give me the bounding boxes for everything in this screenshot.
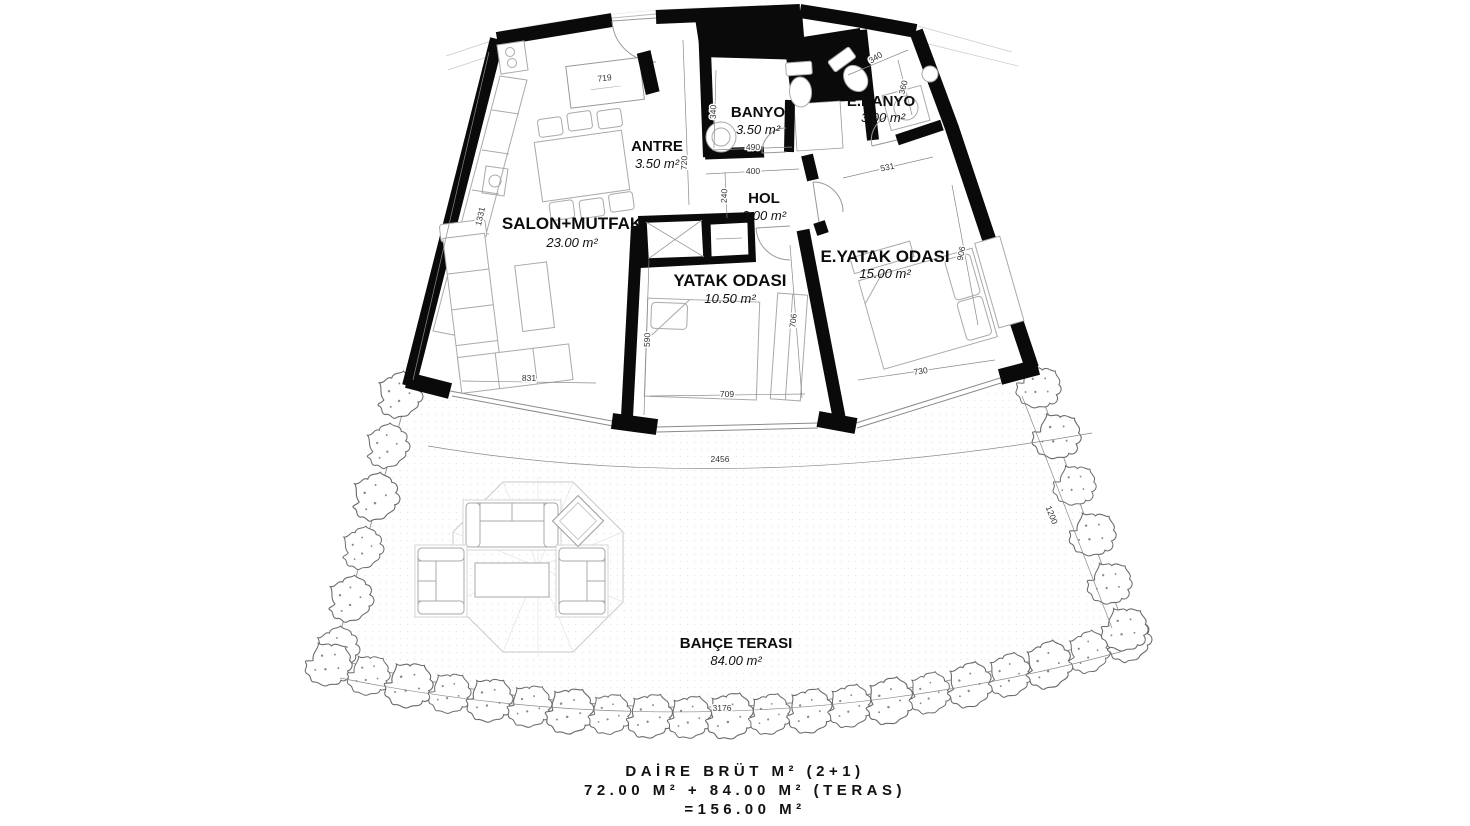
room-area-banyo: 3.50 m²	[736, 122, 781, 137]
room-area-ebanyo: 3.00 m²	[861, 110, 906, 125]
dim-eyatak-window: 730	[913, 365, 929, 377]
coffee-table	[515, 262, 555, 331]
bed-yatak	[644, 298, 759, 400]
summary-line1: DAİRE BRÜT M² (2+1)	[625, 763, 864, 780]
dim-cabinet: 719	[597, 72, 613, 84]
dim-terrace-bottom: 3176	[713, 703, 732, 713]
room-area-antre: 3.50 m²	[635, 156, 680, 171]
room-area-hol: 3.00 m²	[742, 208, 787, 223]
wardrobe-yatak	[770, 293, 807, 401]
sink-ebanyo	[922, 66, 938, 82]
dim-eyatak-top: 531	[879, 161, 895, 174]
dim-terrace-top: 2456	[711, 454, 730, 464]
dim-hol-depth: 240	[719, 188, 729, 203]
dining-table	[531, 106, 635, 223]
floorplan-svg: 719	[0, 0, 1470, 826]
dim-yatak-window: 709	[720, 389, 734, 399]
room-area-terrace: 84.00 m²	[710, 653, 762, 668]
dim-banyo-width: 340	[708, 104, 718, 119]
floorplan-page: 719	[0, 0, 1470, 826]
summary-line3: =156.00 M²	[684, 801, 805, 818]
gazebo-sofa-top	[463, 500, 561, 550]
dim-antre-height: 720	[679, 155, 689, 170]
room-label-salon: SALON+MUTFAK	[502, 214, 643, 233]
room-label-antre: ANTRE	[631, 138, 683, 155]
room-area-yatak: 10.50 m²	[704, 291, 756, 306]
dim-hol-width: 400	[746, 166, 760, 176]
dim-yatak-right: 706	[787, 313, 798, 328]
gazebo-coffee-table	[475, 563, 549, 597]
summary-block: DAİRE BRÜT M² (2+1) 72.00 M² + 84.00 M² …	[584, 763, 906, 818]
room-label-eyatak: E.YATAK ODASI	[820, 247, 949, 266]
dim-salon-window: 831	[522, 373, 536, 383]
room-label-terrace: BAHÇE TERASI	[680, 635, 793, 652]
summary-line2: 72.00 M² + 84.00 M² (TERAS)	[584, 782, 906, 799]
room-label-hol: HOL	[748, 190, 780, 207]
dim-banyo-door: 490	[746, 142, 760, 152]
bed-eyatak	[850, 217, 1026, 370]
room-label-yatak: YATAK ODASI	[673, 271, 786, 290]
kitchen-sink	[482, 166, 508, 196]
dim-yatak-left: 590	[642, 332, 652, 347]
room-area-salon: 23.00 m²	[545, 235, 598, 250]
wall-niche	[794, 101, 843, 151]
shaft-box	[638, 212, 756, 268]
hedge-shrub	[705, 693, 754, 740]
hedge-shrub	[747, 693, 791, 735]
room-label-banyo: BANYO	[731, 104, 786, 121]
room-label-ebanyo: E.BANYO	[847, 93, 916, 110]
cabinet-719: 719	[565, 50, 660, 109]
kitchen-corner-unit	[497, 41, 528, 74]
gazebo-sofa-left	[415, 545, 467, 617]
room-area-eyatak: 15.00 m²	[859, 266, 911, 281]
gazebo-sofa-right	[556, 545, 608, 617]
